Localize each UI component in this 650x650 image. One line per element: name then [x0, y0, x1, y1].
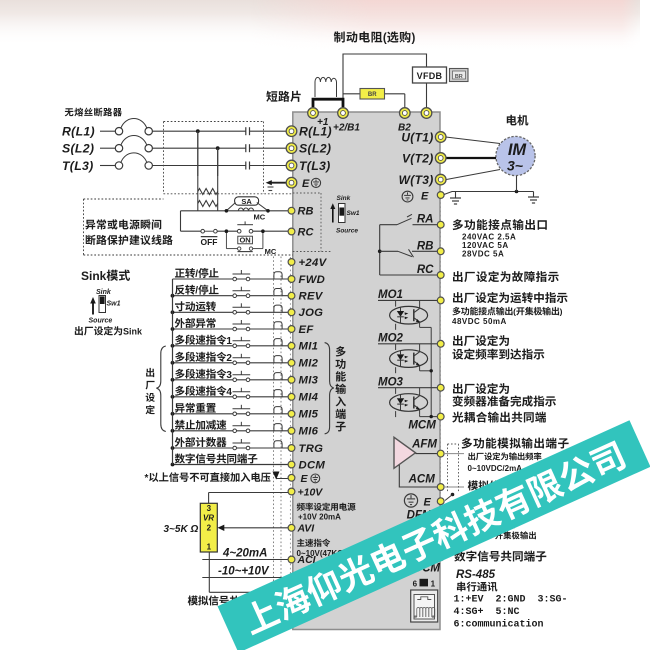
svg-text:RC: RC [298, 227, 315, 239]
svg-text:6: 6 [413, 580, 418, 589]
svg-text:(: ( [383, 33, 387, 45]
svg-text:): ) [560, 307, 563, 317]
svg-text:Sink: Sink [337, 195, 351, 202]
svg-text:REV: REV [299, 291, 324, 303]
svg-text:MI4: MI4 [299, 392, 319, 404]
svg-text:RA: RA [417, 214, 434, 226]
svg-text:MO3: MO3 [378, 377, 404, 389]
svg-text:+10V: +10V [298, 487, 324, 499]
svg-text:Sw1: Sw1 [347, 210, 360, 217]
svg-text:DCM: DCM [299, 459, 326, 471]
svg-text:Sw1: Sw1 [107, 301, 121, 308]
svg-text:ACM: ACM [408, 473, 436, 485]
svg-text:1:+EV 2:GND 3:SG-: 1:+EV 2:GND 3:SG- [454, 595, 568, 606]
svg-text:SA: SA [241, 197, 252, 206]
svg-text:Source: Source [89, 318, 113, 325]
svg-text:U(T1): U(T1) [401, 130, 433, 144]
svg-text:-10~+10V: -10~+10V [218, 566, 270, 578]
svg-text:W(T3): W(T3) [399, 173, 434, 187]
svg-text:IM: IM [508, 141, 528, 159]
svg-text:4~20mA: 4~20mA [222, 548, 267, 560]
svg-text:Sink: Sink [123, 327, 143, 337]
svg-text:RS-485: RS-485 [456, 569, 496, 581]
svg-text:Source: Source [336, 228, 358, 235]
svg-text:/: / [195, 286, 198, 297]
svg-text:E: E [421, 191, 429, 203]
svg-text:R(L1): R(L1) [299, 125, 332, 139]
svg-text:2: 2 [226, 353, 232, 364]
svg-text:(: ( [513, 307, 516, 317]
svg-text:R(L1): R(L1) [62, 125, 95, 139]
svg-text:1: 1 [431, 580, 436, 589]
svg-text:MI6: MI6 [299, 426, 319, 438]
svg-text:+2/B1: +2/B1 [333, 123, 360, 134]
svg-text:1: 1 [226, 336, 232, 347]
svg-text:0~10VDC/2mA: 0~10VDC/2mA [468, 464, 523, 473]
svg-text:2: 2 [207, 524, 212, 533]
svg-text:48VDC 50mA: 48VDC 50mA [452, 317, 507, 326]
svg-text:6:communication: 6:communication [454, 619, 544, 631]
svg-text:3: 3 [226, 370, 232, 381]
svg-text:MI5: MI5 [299, 409, 319, 421]
svg-text:): ) [412, 33, 416, 45]
svg-text:MI1: MI1 [299, 341, 319, 353]
svg-text:Sink: Sink [96, 289, 112, 296]
svg-text:MO1: MO1 [378, 289, 403, 301]
svg-text:/: / [195, 269, 198, 280]
svg-text:TRG: TRG [299, 443, 324, 455]
svg-text:4:SG+ 5:NC: 4:SG+ 5:NC [454, 607, 520, 618]
svg-text:MC: MC [254, 212, 266, 221]
svg-text:T(L3): T(L3) [62, 159, 94, 173]
svg-text:+10V 20mA: +10V 20mA [298, 513, 341, 522]
svg-text:3~5K Ω: 3~5K Ω [164, 524, 199, 535]
svg-text:T(L3): T(L3) [299, 159, 331, 173]
svg-text:*: * [145, 473, 149, 484]
svg-text:4: 4 [226, 387, 232, 398]
svg-text:JOG: JOG [299, 307, 324, 319]
svg-text:3: 3 [207, 504, 212, 513]
svg-text:RC: RC [417, 264, 434, 276]
svg-text:AVI: AVI [297, 523, 316, 535]
svg-text:VFDB: VFDB [417, 71, 443, 81]
svg-text:E: E [302, 178, 310, 190]
svg-text:1: 1 [207, 543, 212, 552]
svg-text:S(L2): S(L2) [62, 142, 94, 156]
svg-text:V(T2): V(T2) [402, 151, 434, 165]
svg-text:MO2: MO2 [378, 333, 404, 345]
svg-text:MI2: MI2 [299, 358, 319, 370]
svg-text:RB: RB [298, 206, 314, 218]
svg-text:+24V: +24V [299, 257, 328, 269]
svg-text:OFF: OFF [201, 237, 218, 247]
svg-text:S(L2): S(L2) [299, 142, 331, 156]
svg-text:VR: VR [203, 514, 214, 523]
svg-text:AFM: AFM [411, 439, 437, 451]
svg-text:MI3: MI3 [299, 375, 319, 387]
svg-text:MC: MC [265, 247, 277, 256]
svg-text:28VDC 5A: 28VDC 5A [462, 250, 504, 259]
svg-text:Sink: Sink [81, 269, 107, 283]
svg-text:3~: 3~ [507, 158, 523, 174]
svg-text:RB: RB [417, 240, 434, 252]
svg-text:BR: BR [455, 74, 463, 80]
svg-text:BR: BR [368, 92, 377, 98]
svg-text:E: E [424, 497, 432, 509]
svg-text:EF: EF [299, 324, 315, 336]
svg-text:E: E [301, 473, 309, 485]
svg-text:FWD: FWD [299, 274, 326, 286]
svg-text:ON: ON [239, 236, 250, 245]
svg-text:MCM: MCM [408, 420, 436, 432]
